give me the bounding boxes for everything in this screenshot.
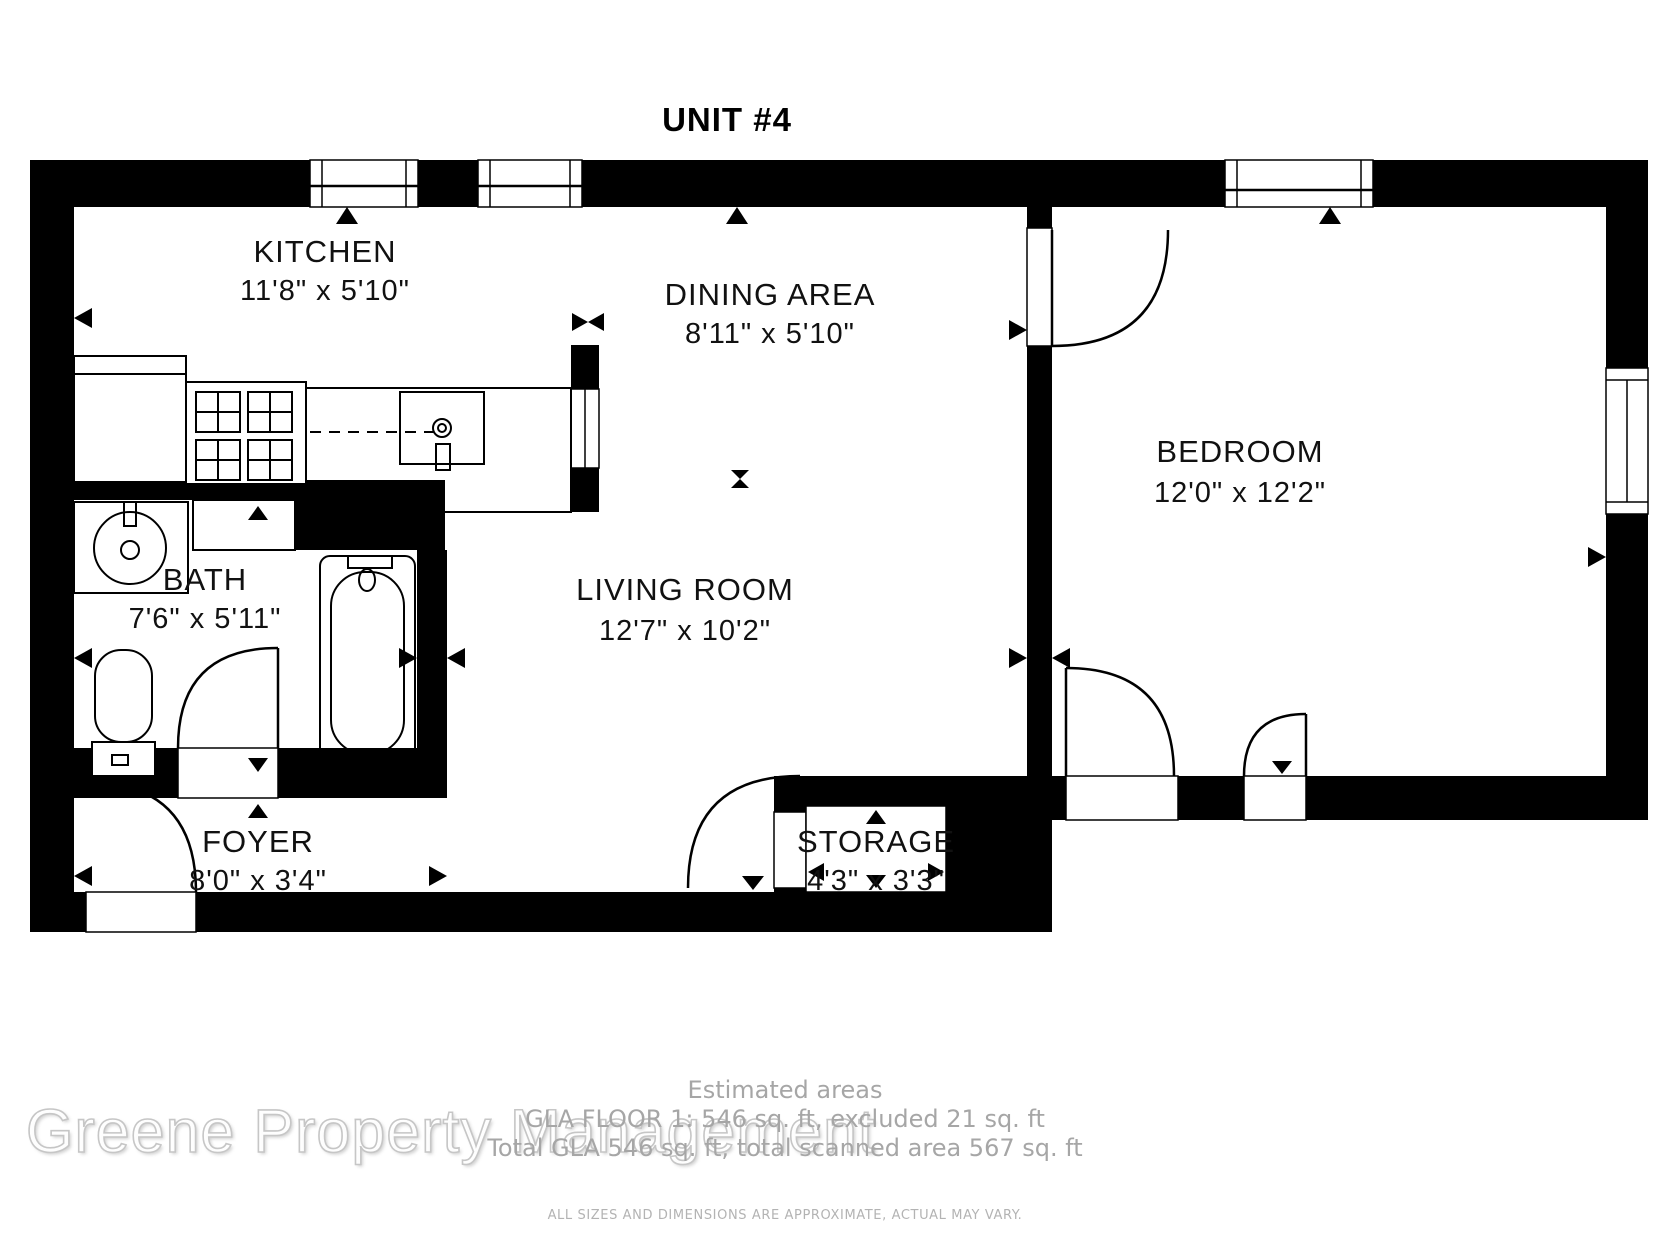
arrow-left-divider (1052, 648, 1070, 668)
arrow-left-kitchen (74, 308, 92, 328)
arrow-up-bathdoor (248, 804, 268, 818)
arrow-left-bath (74, 648, 92, 668)
gla-floor-line: GLA FLOOR 1: 546 sq. ft, excluded 21 sq.… (0, 1105, 1570, 1134)
svg-text:LIVING ROOM: LIVING ROOM (576, 572, 794, 607)
kitchen-fixtures (74, 356, 571, 550)
bedroom-small-door-opening (1244, 776, 1306, 820)
svg-text:11'8" x 5'10": 11'8" x 5'10" (240, 275, 410, 307)
label-bath: BATH 7'6" x 5'11" (129, 562, 282, 635)
arrow-up-kitchen (336, 207, 358, 224)
bath-door-opening (178, 748, 278, 798)
arrow-right-divider (1009, 648, 1027, 668)
wall-storage-right (946, 776, 1052, 892)
bedroom-door-opening (1027, 228, 1052, 346)
bath-cabinet (193, 500, 295, 550)
bedroom-closet-door-opening (1066, 776, 1178, 820)
kitchen-window-2 (478, 160, 582, 207)
bowtie-dining-down (731, 470, 749, 479)
wall-left (30, 160, 74, 932)
svg-text:8'0" x 3'4": 8'0" x 3'4" (189, 865, 327, 897)
arrow-up-dining (726, 207, 748, 224)
bedroom-side-window (1606, 368, 1648, 514)
bowtie-dining-up (731, 479, 749, 488)
passthrough-window (571, 389, 599, 468)
svg-text:BATH: BATH (163, 562, 247, 597)
label-bedroom: BEDROOM 12'0" x 12'2" (1154, 434, 1326, 509)
svg-text:7'6" x 5'11": 7'6" x 5'11" (129, 603, 282, 635)
bath-door (178, 648, 278, 748)
arrow-down-smalldoor (1272, 761, 1292, 774)
svg-text:12'7" x 10'2": 12'7" x 10'2" (599, 615, 771, 647)
arrow-right-foyer (429, 866, 447, 886)
arrow-up-bedroom (1319, 207, 1341, 224)
kitchen-window-1 (310, 160, 418, 207)
label-dining-area: DINING AREA 8'11" x 5'10" (665, 277, 876, 350)
arrow-down-living (742, 876, 764, 890)
floorplan-page: UNIT #4 KITCHEN 11'8" x 5'10" DINING ARE… (0, 0, 1680, 1260)
wall-bath-corner-overlay (295, 480, 445, 550)
wall-divider-top (1027, 207, 1052, 228)
arrow-right-bedroom (1588, 547, 1606, 567)
toilet (92, 650, 155, 776)
plan-title: UNIT #4 (662, 101, 792, 138)
arrow-right-dining-wall (1009, 320, 1027, 340)
disclaimer-text: ALL SIZES AND DIMENSIONS ARE APPROXIMATE… (0, 1208, 1570, 1223)
svg-text:FOYER: FOYER (202, 824, 314, 859)
label-foyer: FOYER 8'0" x 3'4" (189, 824, 327, 897)
bowtie-kitchen-left (588, 313, 604, 331)
entry-door-opening (86, 892, 196, 932)
area-summary: Estimated areas GLA FLOOR 1: 546 sq. ft,… (0, 1076, 1570, 1163)
estimated-areas-label: Estimated areas (0, 1076, 1570, 1105)
bowtie-kitchen-right (572, 313, 588, 331)
label-kitchen: KITCHEN 11'8" x 5'10" (240, 234, 410, 307)
svg-text:STORAGE: STORAGE (797, 824, 955, 859)
bedroom-small-door (1244, 714, 1306, 776)
label-living-room: LIVING ROOM 12'7" x 10'2" (576, 572, 794, 647)
wall-bath-right (417, 550, 447, 748)
svg-text:8'11" x 5'10": 8'11" x 5'10" (685, 318, 855, 350)
wall-top (30, 160, 1648, 207)
bedroom-door (1052, 230, 1168, 346)
wall-passthrough-lower (571, 468, 599, 512)
arrow-up-cabinet (248, 506, 268, 520)
bedroom-closet-door (1066, 668, 1174, 776)
stove (186, 382, 306, 484)
total-gla-line: Total GLA 546 sq. ft, total scanned area… (0, 1134, 1570, 1163)
refrigerator (74, 356, 186, 482)
floorplan-drawing: UNIT #4 KITCHEN 11'8" x 5'10" DINING ARE… (0, 0, 1680, 1260)
svg-text:DINING AREA: DINING AREA (665, 277, 876, 312)
wall-passthrough-upper (571, 345, 599, 389)
arrow-left-foyer (74, 866, 92, 886)
svg-text:KITCHEN: KITCHEN (253, 234, 396, 269)
arrow-left-bathwall (447, 648, 465, 668)
svg-text:12'0" x 12'2": 12'0" x 12'2" (1154, 477, 1326, 509)
svg-text:4'3" x 3'3": 4'3" x 3'3" (807, 865, 945, 897)
svg-text:BEDROOM: BEDROOM (1156, 434, 1323, 469)
bedroom-window (1225, 160, 1373, 207)
